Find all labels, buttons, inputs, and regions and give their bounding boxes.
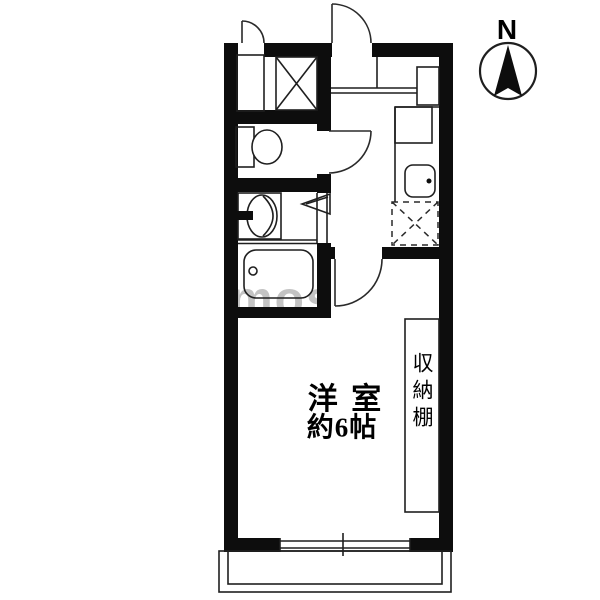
- wall-bottom: [410, 538, 453, 552]
- toilet-room: [236, 127, 282, 167]
- wall-top: [264, 43, 332, 57]
- room-size-label: 約6帖: [307, 406, 378, 445]
- wall-right: [439, 43, 453, 552]
- wall-kitchen-room: [317, 247, 335, 259]
- kitchen: [392, 107, 439, 245]
- floorplan-page: mos: [0, 0, 600, 600]
- service-area: [237, 55, 439, 111]
- meter-box: [237, 55, 264, 111]
- washbasin-faucet: [234, 211, 253, 220]
- room-door-arc: [335, 259, 382, 306]
- storage-shelf-label: 収納棚: [407, 352, 437, 433]
- compass-needle: [494, 45, 522, 96]
- compass: [480, 43, 536, 99]
- kitchen-faucet: [427, 179, 432, 184]
- balcony-inner: [228, 551, 442, 584]
- balcony: [219, 551, 451, 592]
- bathroom: [244, 250, 313, 298]
- entrance-door-arc: [332, 4, 371, 43]
- compass-north-label: N: [497, 14, 517, 46]
- washroom: [234, 193, 330, 244]
- refrigerator-space: [392, 202, 438, 245]
- meter-box-door-arc: [242, 21, 264, 43]
- wall-below-toilet: [238, 178, 331, 192]
- wall-kitchen-room: [382, 247, 439, 259]
- balcony-outer: [219, 551, 451, 592]
- washbasin-rim: [263, 196, 273, 236]
- toilet-bowl: [252, 130, 282, 164]
- wall-below-shaft: [238, 110, 331, 124]
- wall-bottom: [224, 538, 280, 552]
- bathtub-drain: [249, 267, 257, 275]
- kitchen-counter: [395, 107, 432, 143]
- refrigerator-cross: [392, 202, 438, 245]
- toilet-door-arc: [329, 131, 371, 173]
- shoe-cabinet: [417, 67, 439, 105]
- wall-left: [224, 43, 238, 552]
- refrigerator-cross: [392, 202, 438, 245]
- wall-bath-bottom: [238, 307, 331, 318]
- floorplan-drawing: [0, 0, 600, 600]
